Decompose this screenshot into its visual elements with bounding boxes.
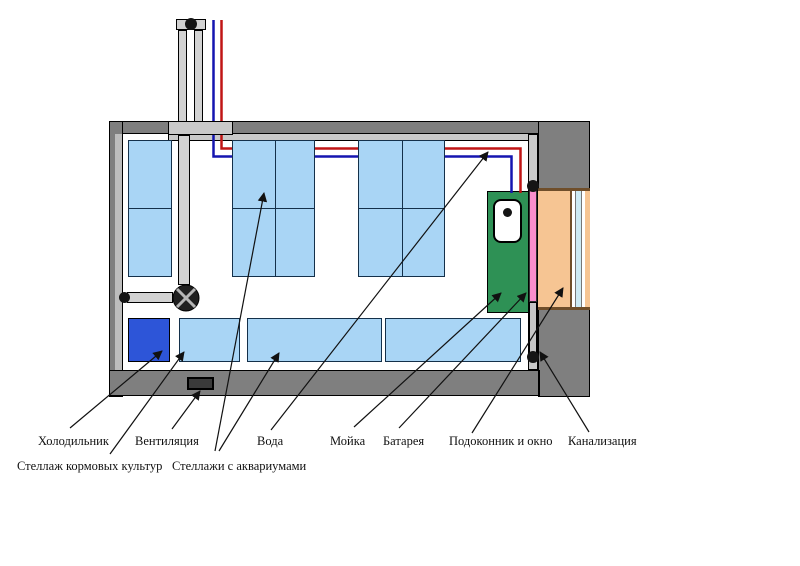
fan-icon: [171, 283, 201, 313]
sewer-outlet-dot: [527, 351, 539, 363]
rack-bottom-middle: [247, 318, 382, 362]
label-sewerage: Канализация: [568, 434, 637, 449]
label-fridge: Холодильник: [38, 434, 109, 449]
window-glass: [575, 191, 582, 307]
wall-bottom: [109, 370, 590, 396]
water-inlet-dot: [527, 180, 539, 192]
radiator: [529, 190, 537, 302]
vent-duct-wall-pass: [168, 121, 233, 135]
sewer-pipe: [529, 302, 537, 356]
vent-wall-outlet-dot: [119, 292, 130, 303]
vent-cap-knob: [185, 18, 197, 30]
window-assembly: [538, 188, 590, 310]
vent-duct-interior: [178, 135, 190, 285]
sink-drain-dot: [503, 208, 512, 217]
refrigerator: [128, 318, 170, 362]
arrow-ventilation: [172, 391, 200, 429]
label-sink: Мойка: [330, 434, 365, 449]
floor-plan-diagram: Холодильник Вентиляция Вода Мойка Батаре…: [0, 0, 800, 566]
window-gap-outer: [582, 191, 585, 307]
label-aquarium-racks: Стеллажи с аквариумами: [172, 459, 306, 474]
wall-seam: [538, 370, 540, 396]
label-ventilation: Вентиляция: [135, 434, 199, 449]
label-radiator: Батарея: [383, 434, 424, 449]
vent-duct-outer-left: [178, 30, 187, 122]
label-feed-rack: Стеллаж кормовых культур: [17, 459, 162, 474]
rack-top-left: [128, 140, 172, 277]
rack-top-right: [358, 140, 445, 277]
vent-grille: [187, 377, 214, 390]
feed-crop-rack: [179, 318, 240, 362]
label-water: Вода: [257, 434, 283, 449]
vent-duct-outer-right: [194, 30, 203, 122]
sink-basin: [493, 199, 522, 243]
label-windowsill: Подоконник и окно: [449, 434, 553, 449]
wall-inner-band-left: [115, 134, 123, 370]
vent-duct-horizontal: [127, 292, 173, 303]
rack-top-middle: [232, 140, 315, 277]
rack-bottom-right: [385, 318, 521, 362]
